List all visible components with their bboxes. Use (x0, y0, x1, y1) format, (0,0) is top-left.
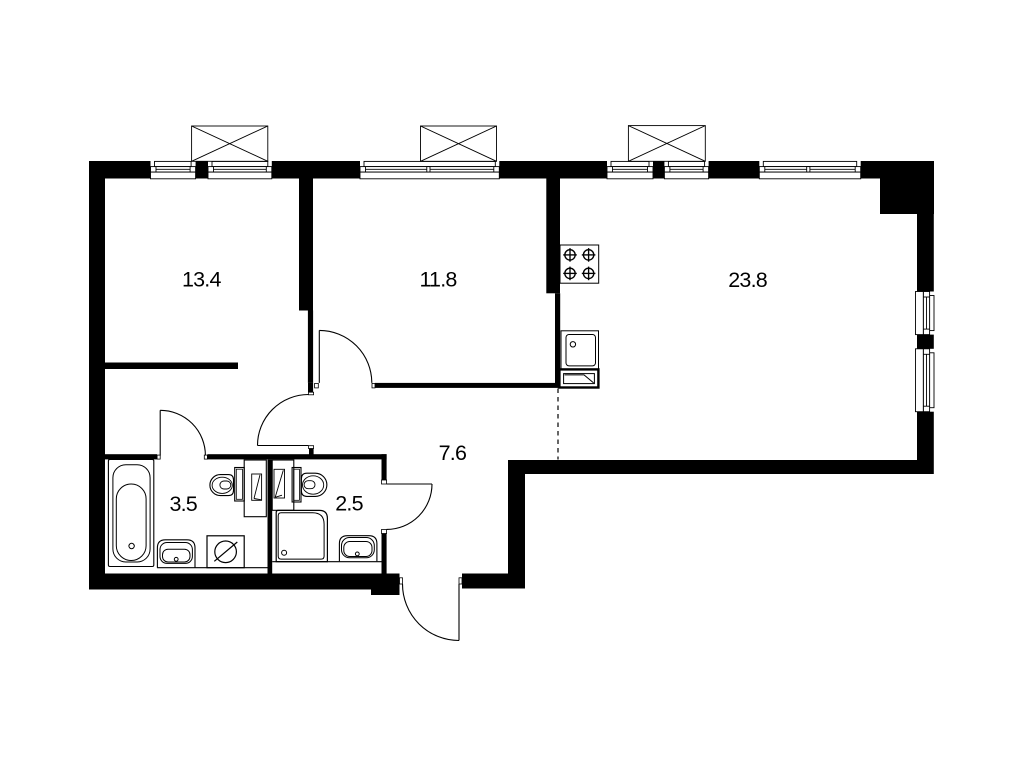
svg-text:13.4: 13.4 (182, 267, 221, 291)
svg-text:11.8: 11.8 (419, 267, 457, 291)
svg-text:7.6: 7.6 (439, 441, 467, 465)
svg-text:23.8: 23.8 (728, 268, 767, 292)
svg-text:3.5: 3.5 (169, 492, 197, 516)
svg-text:2.5: 2.5 (335, 491, 363, 515)
